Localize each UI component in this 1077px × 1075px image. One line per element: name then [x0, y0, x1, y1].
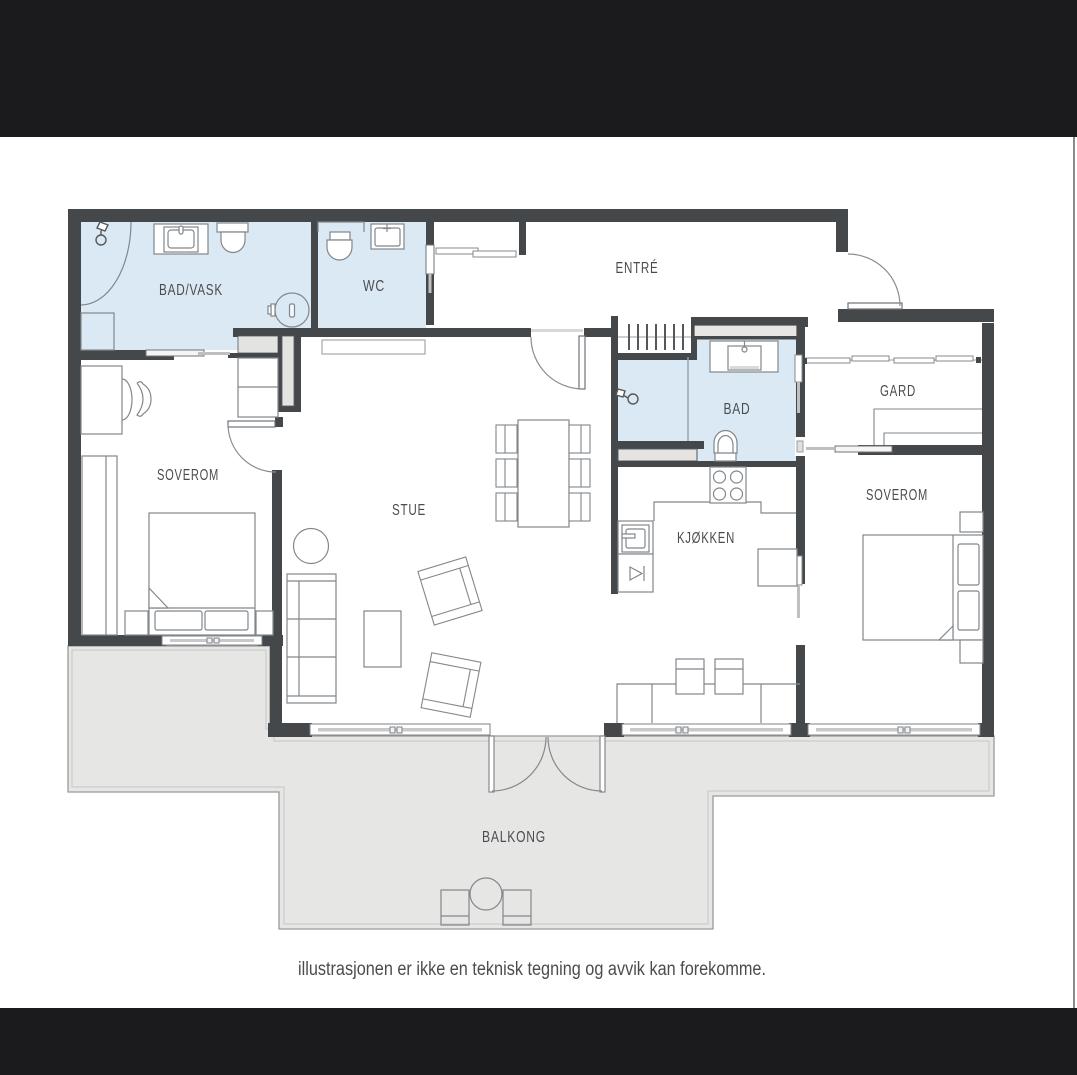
svg-text:SOVEROM: SOVEROM: [157, 467, 219, 484]
svg-text:GARD: GARD: [880, 383, 916, 400]
svg-text:SOVEROM: SOVEROM: [866, 487, 928, 504]
svg-text:WC: WC: [363, 278, 385, 295]
svg-text:BAD: BAD: [724, 401, 751, 418]
svg-text:STUE: STUE: [392, 502, 426, 519]
svg-text:ENTRÉ: ENTRÉ: [616, 260, 659, 277]
svg-text:BAD/VASK: BAD/VASK: [159, 282, 223, 299]
svg-text:illustrasjonen er ikke en tekn: illustrasjonen er ikke en teknisk tegnin…: [298, 959, 766, 980]
svg-text:BALKONG: BALKONG: [482, 829, 546, 846]
svg-text:KJØKKEN: KJØKKEN: [677, 530, 735, 547]
